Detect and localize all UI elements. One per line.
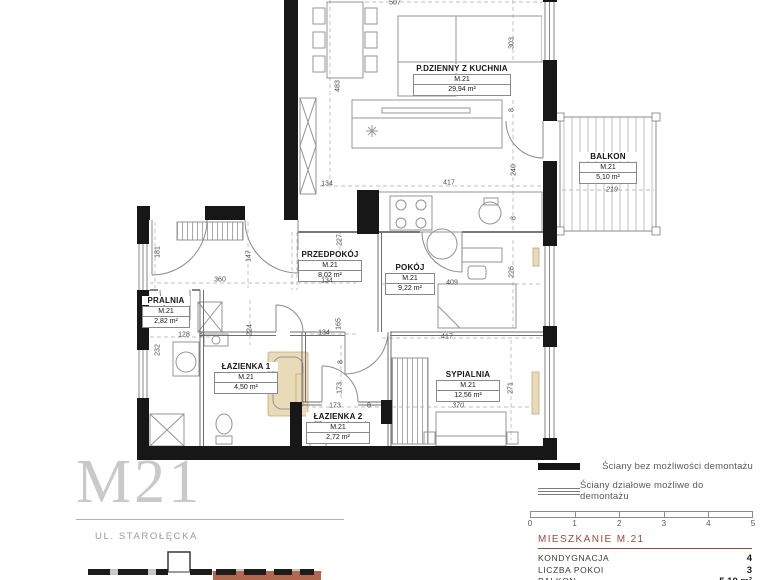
scale-tick — [530, 512, 531, 517]
info-row-balkon: BALKON5,10 m² — [538, 576, 752, 580]
dimension-label: 417 — [441, 334, 453, 341]
dimension-label: 360 — [214, 277, 226, 284]
dimension-label: 240 — [511, 164, 518, 176]
dimension-label: 165 — [336, 318, 343, 330]
scale-number: 0 — [528, 519, 532, 528]
dimension-label: 8 — [367, 403, 371, 410]
scale-number: 2 — [617, 519, 621, 528]
dimension-label: 173 — [329, 403, 341, 410]
scale-tick — [619, 512, 620, 517]
dimension-label: 134 — [321, 181, 333, 188]
dimension-label: 232 — [155, 344, 162, 356]
floor-plan-page: P.DZIENNY Z KUCHNIAM.2129,94 m²BALKONM.2… — [0, 0, 780, 580]
info-heading: MIESZKANIE M.21 — [538, 534, 752, 549]
dimension-label: 8 — [511, 216, 518, 220]
street-label: UL. STAROŁĘCKA — [95, 531, 198, 542]
unit-title: M21 — [76, 452, 202, 512]
dimension-label: 219 — [606, 187, 618, 194]
dimension-label: 409 — [446, 280, 458, 287]
info-value: 5,10 m² — [719, 576, 752, 580]
apartment-info-panel: MIESZKANIE M.21 KONDYGNACJA4LICZBA POKOI… — [538, 534, 752, 580]
dimension-label: 8 — [338, 360, 345, 364]
legend-item-label: Ściany działowe możliwe do demontażu — [580, 480, 753, 502]
legend-item-label: Ściany bez możliwości demontażu — [602, 461, 753, 472]
info-label: KONDYGNACJA — [538, 553, 609, 565]
info-rows: KONDYGNACJA4LICZBA POKOI3BALKON5,10 m² — [538, 553, 752, 580]
divider-line — [76, 519, 344, 520]
dimension-label: 181 — [155, 246, 162, 258]
dimension-label: 507 — [389, 0, 401, 7]
scale-tick — [708, 512, 709, 517]
scale-number: 4 — [706, 519, 710, 528]
dimension-label: 128 — [178, 332, 190, 339]
legend-item-0: Ściany bez możliwości demontażu — [530, 461, 753, 472]
scale-tick — [664, 512, 665, 517]
scale-tick — [575, 512, 576, 517]
scale-number: 5 — [751, 519, 755, 528]
dimension-label: 8 — [199, 332, 203, 339]
dimension-label: 227 — [337, 234, 344, 246]
dimension-label: 303 — [509, 37, 516, 49]
dimension-label: 134 — [318, 330, 330, 337]
dimension-label: 417 — [443, 180, 455, 187]
dimension-label: 134 — [321, 278, 333, 285]
info-row-liczba-pokoi: LICZBA POKOI3 — [538, 565, 752, 577]
building-minimap — [50, 548, 340, 580]
info-value: 3 — [747, 565, 752, 577]
info-label: BALKON — [538, 576, 576, 580]
dimension-labels: 5073038483134417240821922718114736013440… — [0, 0, 780, 470]
info-label: LICZBA POKOI — [538, 565, 604, 577]
dimension-label: 226 — [509, 266, 516, 278]
dimension-label: 173 — [337, 382, 344, 394]
dimension-label: 271 — [508, 382, 515, 394]
scale-bar: 012345 — [530, 511, 753, 533]
scale-bar-line — [530, 511, 753, 518]
scale-number: 1 — [572, 519, 576, 528]
legend-item-1: Ściany działowe możliwe do demontażu — [530, 480, 753, 502]
legend-swatch-double — [538, 488, 580, 495]
info-value: 4 — [747, 553, 752, 565]
legend: Ściany bez możliwości demontażuŚciany dz… — [530, 461, 753, 533]
dimension-label: 224 — [247, 324, 254, 336]
legend-items: Ściany bez możliwości demontażuŚciany dz… — [530, 461, 753, 502]
scale-tick — [752, 512, 753, 517]
dimension-label: 8 — [509, 108, 516, 112]
legend-swatch-solid — [538, 463, 580, 470]
info-row-kondygnacja: KONDYGNACJA4 — [538, 553, 752, 565]
scale-number: 3 — [662, 519, 666, 528]
dimension-label: 483 — [335, 80, 342, 92]
dimension-label: 370 — [452, 403, 464, 410]
dimension-label: 147 — [246, 250, 253, 262]
